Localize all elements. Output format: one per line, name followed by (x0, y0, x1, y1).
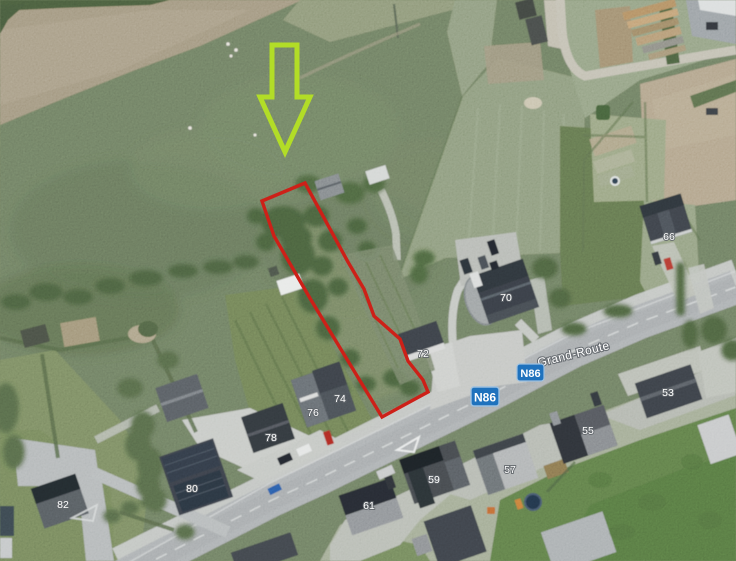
svg-text:72: 72 (417, 348, 429, 360)
svg-text:55: 55 (582, 425, 594, 437)
svg-text:76: 76 (307, 407, 319, 419)
svg-text:53: 53 (662, 387, 674, 399)
svg-text:57: 57 (504, 464, 516, 476)
svg-text:66: 66 (663, 231, 675, 243)
svg-text:70: 70 (500, 292, 512, 304)
svg-text:74: 74 (334, 393, 346, 405)
svg-text:80: 80 (186, 483, 198, 495)
svg-text:59: 59 (428, 474, 440, 486)
svg-text:61: 61 (363, 500, 375, 512)
svg-text:N86: N86 (474, 391, 496, 405)
svg-text:78: 78 (265, 432, 277, 444)
svg-text:N86: N86 (520, 368, 540, 380)
svg-text:82: 82 (57, 499, 69, 511)
